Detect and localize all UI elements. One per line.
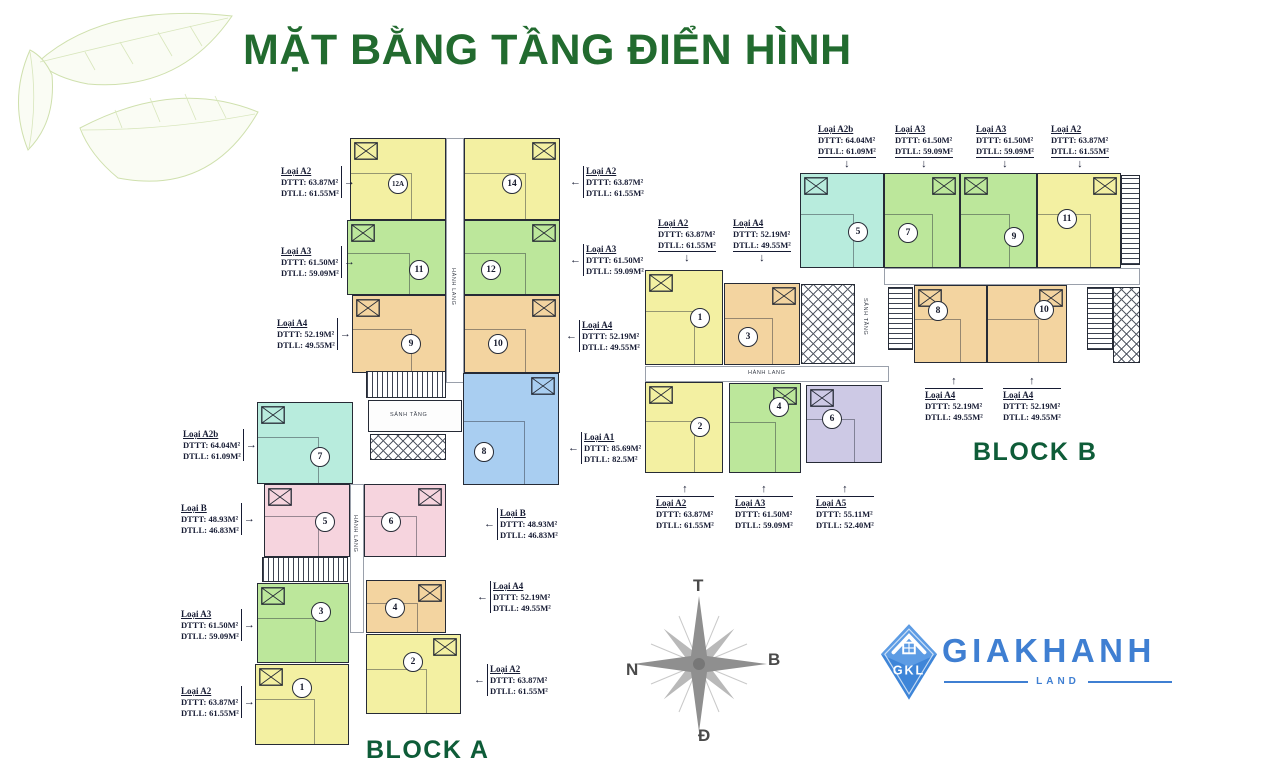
area-dttt-value: DTTT: 63.87M² xyxy=(181,697,239,708)
area-type-text: Loại A2DTTT: 63.87M²DTLL: 61.55M² xyxy=(656,496,714,530)
unit-number-badge: 3 xyxy=(311,602,331,622)
area-dtll-value: DTLL: 61.55M² xyxy=(1051,146,1109,157)
arrow-down-icon: ↓ xyxy=(1002,159,1008,170)
unit-number-badge: 12A xyxy=(388,174,408,194)
area-type-label: ↑Loại A5DTTT: 55.11M²DTLL: 52.40M² xyxy=(816,484,874,530)
area-dtll-value: DTLL: 59.09M² xyxy=(181,631,239,642)
area-type-text: Loại A3DTTT: 61.50M²DTLL: 59.09M² xyxy=(181,609,239,641)
unit-number-badge: 1 xyxy=(292,678,312,698)
area-type-label: Loại A4DTTT: 52.19M²DTLL: 49.55M²↓ xyxy=(733,218,791,264)
apartment-type-name: Loại A4 xyxy=(733,218,763,229)
logo-badge-text: GKL xyxy=(893,664,925,678)
logo-diamond-icon: GKL xyxy=(880,623,938,701)
gia-khanh-land-logo: GKL GIAKHANH LAND xyxy=(866,612,1188,707)
area-dttt-value: DTTT: 61.50M² xyxy=(895,135,952,146)
area-type-label: Loại A2DTTT: 63.87M²DTLL: 61.55M²→ xyxy=(181,686,255,718)
apartment-type-name: Loại A2 xyxy=(656,498,686,509)
area-type-text: Loại BDTTT: 48.93M²DTLL: 46.83M² xyxy=(181,503,239,535)
elevator-core xyxy=(370,434,446,460)
unit-number-badge: 6 xyxy=(822,409,842,429)
area-type-label: ←Loại A2DTTT: 63.87M²DTLL: 61.55M² xyxy=(570,166,644,198)
apartment-type-name: Loại B xyxy=(500,508,558,519)
corridor-label: HÀNH LANG xyxy=(748,370,786,376)
apartment-type-name: Loại A1 xyxy=(584,432,641,443)
apartment-type-name: Loại A3 xyxy=(281,246,339,257)
bracket-line xyxy=(241,609,242,641)
arrow-down-icon: ↓ xyxy=(1077,159,1083,170)
apartment-type-name: Loại A3 xyxy=(586,244,644,255)
logo-rule-line xyxy=(1088,681,1172,683)
area-type-text: Loại A2bDTTT: 64.04M²DTLL: 61.09M² xyxy=(818,124,876,158)
area-type-label: Loại BDTTT: 48.93M²DTLL: 46.83M²→ xyxy=(181,503,255,535)
unit-number-badge: 11 xyxy=(409,260,429,280)
area-type-label: Loại A2DTTT: 63.87M²DTLL: 61.55M²→ xyxy=(281,166,355,198)
area-dtll-value: DTLL: 59.09M² xyxy=(735,520,793,531)
area-dttt-value: DTTT: 61.50M² xyxy=(735,509,792,520)
area-dttt-value: DTTT: 52.19M² xyxy=(493,592,551,603)
area-dtll-value: DTLL: 61.55M² xyxy=(281,188,339,199)
stairs xyxy=(262,557,348,582)
area-dtll-value: DTLL: 49.55M² xyxy=(582,342,640,353)
area-dtll-value: DTLL: 49.55M² xyxy=(493,603,551,614)
typical-floor-plan-page: MẶT BẰNG TẦNG ĐIỂN HÌNH 12A 14 11 12 9 1… xyxy=(0,0,1279,767)
area-type-label: ←Loại A1DTTT: 85.69M²DTLL: 82.5M² xyxy=(568,432,641,464)
area-dttt-value: DTTT: 63.87M² xyxy=(490,675,548,686)
area-dtll-value: DTLL: 59.09M² xyxy=(976,146,1034,157)
area-type-label: Loại A2DTTT: 63.87M²DTLL: 61.55M²↓ xyxy=(658,218,716,264)
unit-number-badge: 5 xyxy=(315,512,335,532)
arrow-right-icon: → xyxy=(244,620,255,631)
compass-right-label: B xyxy=(768,650,780,670)
apartment-type-name: Loại A4 xyxy=(277,318,335,329)
area-type-label: Loại A3DTTT: 61.50M²DTLL: 59.09M²↓ xyxy=(976,124,1034,170)
apartment-type-name: Loại A2b xyxy=(818,124,853,135)
bracket-line xyxy=(490,581,491,613)
unit-number-badge: 10 xyxy=(1034,300,1054,320)
arrow-down-icon: ↓ xyxy=(759,253,765,264)
area-type-text: Loại A4DTTT: 52.19M²DTLL: 49.55M² xyxy=(733,218,791,252)
arrow-up-icon: ↑ xyxy=(1029,376,1035,387)
stairs xyxy=(366,371,446,398)
unit-number-badge: 12 xyxy=(481,260,501,280)
arrow-up-icon: ↑ xyxy=(682,484,688,495)
area-dttt-value: DTTT: 64.04M² xyxy=(818,135,875,146)
area-type-label: ←Loại A4DTTT: 52.19M²DTLL: 49.55M² xyxy=(477,581,551,613)
arrow-down-icon: ↓ xyxy=(844,159,850,170)
area-type-text: Loại A2DTTT: 63.87M²DTLL: 61.55M² xyxy=(281,166,339,198)
area-type-label: ←Loại BDTTT: 48.93M²DTLL: 46.83M² xyxy=(484,508,558,540)
area-dtll-value: DTLL: 59.09M² xyxy=(895,146,953,157)
area-dttt-value: DTTT: 61.50M² xyxy=(586,255,644,266)
arrow-down-icon: ↓ xyxy=(921,159,927,170)
corridor-label: SẢNH TẦNG xyxy=(390,412,427,418)
area-dttt-value: DTTT: 61.50M² xyxy=(281,257,339,268)
area-type-label: Loại A2DTTT: 63.87M²DTLL: 61.55M²↓ xyxy=(1051,124,1109,170)
block-a-label: BLOCK A xyxy=(366,736,489,765)
corridor-label: HÀNH LANG xyxy=(450,268,456,306)
area-type-text: Loại A4DTTT: 52.19M²DTLL: 49.55M² xyxy=(925,388,983,422)
area-type-text: Loại A3DTTT: 61.50M²DTLL: 59.09M² xyxy=(735,496,793,530)
logo-brand-text: GIAKHANH xyxy=(942,632,1156,670)
bracket-line xyxy=(341,166,342,198)
arrow-left-icon: ← xyxy=(568,443,579,454)
area-type-label: ↑Loại A4DTTT: 52.19M²DTLL: 49.55M² xyxy=(1003,376,1061,422)
area-type-text: Loại A3DTTT: 61.50M²DTLL: 59.09M² xyxy=(281,246,339,278)
area-dtll-value: DTLL: 61.55M² xyxy=(656,520,714,531)
arrow-right-icon: → xyxy=(344,177,355,188)
area-type-text: Loại A3DTTT: 61.50M²DTLL: 59.09M² xyxy=(895,124,953,158)
area-type-label: Loại A2bDTTT: 64.04M²DTLL: 61.09M²→ xyxy=(183,429,257,461)
logo-rule: LAND xyxy=(944,676,1172,687)
area-dttt-value: DTTT: 48.93M² xyxy=(500,519,558,530)
unit-number-badge: 10 xyxy=(488,334,508,354)
area-dttt-value: DTTT: 52.19M² xyxy=(1003,401,1060,412)
corridor-label: SẢNH TẦNG xyxy=(862,298,868,335)
block-b-label: BLOCK B xyxy=(973,438,1097,467)
apartment-type-name: Loại B xyxy=(181,503,239,514)
apartment-type-name: Loại A3 xyxy=(976,124,1006,135)
area-dtll-value: DTLL: 61.55M² xyxy=(181,708,239,719)
area-type-text: Loại A2DTTT: 63.87M²DTLL: 61.55M² xyxy=(658,218,716,252)
unit-number-badge: 7 xyxy=(310,447,330,467)
unit-number-badge: 1 xyxy=(690,308,710,328)
bracket-line xyxy=(487,664,488,696)
area-dttt-value: DTTT: 63.87M² xyxy=(586,177,644,188)
arrow-right-icon: → xyxy=(246,440,257,451)
area-type-label: ↑Loại A4DTTT: 52.19M²DTLL: 49.55M² xyxy=(925,376,983,422)
area-type-label: Loại A3DTTT: 61.50M²DTLL: 59.09M²↓ xyxy=(895,124,953,170)
area-dtll-value: DTLL: 52.40M² xyxy=(816,520,874,531)
area-type-text: Loại A5DTTT: 55.11M²DTLL: 52.40M² xyxy=(816,496,874,530)
compass-rose: T B Đ N xyxy=(612,578,787,748)
area-type-label: ↑Loại A3DTTT: 61.50M²DTLL: 59.09M² xyxy=(735,484,793,530)
area-type-text: Loại A2DTTT: 63.87M²DTLL: 61.55M² xyxy=(181,686,239,718)
apartment-type-name: Loại A4 xyxy=(582,320,640,331)
arrow-right-icon: → xyxy=(244,697,255,708)
area-dtll-value: DTLL: 61.55M² xyxy=(658,240,716,251)
area-dttt-value: DTTT: 63.87M² xyxy=(658,229,715,240)
apartment-type-name: Loại A4 xyxy=(925,390,955,401)
area-dttt-value: DTTT: 61.50M² xyxy=(976,135,1033,146)
unit-number-badge: 11 xyxy=(1057,209,1077,229)
unit-number-badge: 4 xyxy=(385,598,405,618)
unit-number-badge: 2 xyxy=(403,652,423,672)
arrow-left-icon: ← xyxy=(484,519,495,530)
area-dttt-value: DTTT: 85.69M² xyxy=(584,443,641,454)
logo-sub-text: LAND xyxy=(1028,676,1088,687)
arrow-left-icon: ← xyxy=(477,592,488,603)
compass-top-label: T xyxy=(693,576,703,596)
area-type-text: Loại A4DTTT: 52.19M²DTLL: 49.55M² xyxy=(582,320,640,352)
apartment-type-name: Loại A2 xyxy=(281,166,339,177)
elevator-core xyxy=(1113,287,1140,363)
area-dttt-value: DTTT: 63.87M² xyxy=(656,509,713,520)
apartment-type-name: Loại A2 xyxy=(181,686,239,697)
arrow-up-icon: ↑ xyxy=(842,484,848,495)
unit-number-badge: 4 xyxy=(769,397,789,417)
bracket-line xyxy=(497,508,498,540)
area-type-text: Loại A3DTTT: 61.50M²DTLL: 59.09M² xyxy=(586,244,644,276)
unit-number-badge: 14 xyxy=(502,174,522,194)
apartment-type-name: Loại A2 xyxy=(658,218,688,229)
area-dtll-value: DTLL: 61.09M² xyxy=(183,451,241,462)
area-dttt-value: DTTT: 61.50M² xyxy=(181,620,239,631)
area-dtll-value: DTLL: 49.55M² xyxy=(277,340,335,351)
apartment-type-name: Loại A2 xyxy=(586,166,644,177)
apartment-type-name: Loại A2 xyxy=(1051,124,1081,135)
bracket-line xyxy=(581,432,582,464)
area-type-text: Loại BDTTT: 48.93M²DTLL: 46.83M² xyxy=(500,508,558,540)
compass-left-label: N xyxy=(626,660,638,680)
bracket-line xyxy=(583,166,584,198)
area-type-text: Loại A1DTTT: 85.69M²DTLL: 82.5M² xyxy=(584,432,641,464)
area-type-text: Loại A2DTTT: 63.87M²DTLL: 61.55M² xyxy=(490,664,548,696)
apartment-type-name: Loại A4 xyxy=(493,581,551,592)
area-dttt-value: DTTT: 55.11M² xyxy=(816,509,873,520)
area-type-text: Loại A4DTTT: 52.19M²DTLL: 49.55M² xyxy=(1003,388,1061,422)
bracket-line xyxy=(583,244,584,276)
bracket-line xyxy=(341,246,342,278)
area-dtll-value: DTLL: 49.55M² xyxy=(925,412,983,423)
apartment-type-name: Loại A2b xyxy=(183,429,241,440)
bracket-line xyxy=(241,503,242,535)
bracket-line xyxy=(243,429,244,461)
arrow-left-icon: ← xyxy=(570,255,581,266)
area-dtll-value: DTLL: 82.5M² xyxy=(584,454,641,465)
logo-rule-line xyxy=(944,681,1028,683)
apartment-type-name: Loại A3 xyxy=(895,124,925,135)
unit-number-badge: 8 xyxy=(474,442,494,462)
area-type-label: Loại A3DTTT: 61.50M²DTLL: 59.09M²→ xyxy=(281,246,355,278)
area-dtll-value: DTLL: 49.55M² xyxy=(733,240,791,251)
arrow-up-icon: ↑ xyxy=(951,376,957,387)
area-dttt-value: DTTT: 48.93M² xyxy=(181,514,239,525)
area-dtll-value: DTLL: 59.09M² xyxy=(281,268,339,279)
area-type-label: Loại A3DTTT: 61.50M²DTLL: 59.09M²→ xyxy=(181,609,255,641)
area-dttt-value: DTTT: 63.87M² xyxy=(281,177,339,188)
unit-number-badge: 7 xyxy=(898,223,918,243)
stairs xyxy=(1121,175,1140,265)
arrow-right-icon: → xyxy=(340,329,351,340)
unit-number-badge: 3 xyxy=(738,327,758,347)
unit-number-badge: 5 xyxy=(848,222,868,242)
area-type-text: Loại A4DTTT: 52.19M²DTLL: 49.55M² xyxy=(493,581,551,613)
unit-number-badge: 6 xyxy=(381,512,401,532)
area-dttt-value: DTTT: 64.04M² xyxy=(183,440,241,451)
area-type-label: ←Loại A2DTTT: 63.87M²DTLL: 61.55M² xyxy=(474,664,548,696)
arrow-down-icon: ↓ xyxy=(684,253,690,264)
area-dtll-value: DTLL: 46.83M² xyxy=(181,525,239,536)
arrow-left-icon: ← xyxy=(566,331,577,342)
area-type-label: Loại A4DTTT: 52.19M²DTLL: 49.55M²→ xyxy=(277,318,351,350)
apartment-type-name: Loại A3 xyxy=(735,498,765,509)
apartment-type-name: Loại A2 xyxy=(490,664,548,675)
area-dtll-value: DTLL: 46.83M² xyxy=(500,530,558,541)
area-type-label: Loại A2bDTTT: 64.04M²DTLL: 61.09M²↓ xyxy=(818,124,876,170)
area-dtll-value: DTLL: 59.09M² xyxy=(586,266,644,277)
elevator-core xyxy=(801,284,855,364)
unit-number-badge: 9 xyxy=(1004,227,1024,247)
area-dtll-value: DTLL: 49.55M² xyxy=(1003,412,1061,423)
compass-bottom-label: Đ xyxy=(698,726,710,746)
area-type-label: ←Loại A3DTTT: 61.50M²DTLL: 59.09M² xyxy=(570,244,644,276)
arrow-right-icon: → xyxy=(244,514,255,525)
unit-number-badge: 9 xyxy=(401,334,421,354)
apartment-type-name: Loại A5 xyxy=(816,498,846,509)
area-dttt-value: DTTT: 52.19M² xyxy=(582,331,640,342)
apartment-type-name: Loại A3 xyxy=(181,609,239,620)
unit-number-badge: 2 xyxy=(690,417,710,437)
area-dttt-value: DTTT: 52.19M² xyxy=(277,329,335,340)
arrow-left-icon: ← xyxy=(474,675,485,686)
area-dtll-value: DTLL: 61.55M² xyxy=(586,188,644,199)
area-dtll-value: DTLL: 61.09M² xyxy=(818,146,876,157)
bracket-line xyxy=(579,320,580,352)
area-type-text: Loại A3DTTT: 61.50M²DTLL: 59.09M² xyxy=(976,124,1034,158)
area-type-label: ↑Loại A2DTTT: 63.87M²DTLL: 61.55M² xyxy=(656,484,714,530)
stairs xyxy=(888,287,913,350)
unit-number-badge: 8 xyxy=(928,301,948,321)
area-type-text: Loại A4DTTT: 52.19M²DTLL: 49.55M² xyxy=(277,318,335,350)
arrow-right-icon: → xyxy=(344,257,355,268)
area-dttt-value: DTTT: 63.87M² xyxy=(1051,135,1108,146)
stairs xyxy=(1087,287,1113,350)
area-dttt-value: DTTT: 52.19M² xyxy=(925,401,982,412)
corridor-label: HÀNH LANG xyxy=(352,515,358,553)
area-type-label: ←Loại A4DTTT: 52.19M²DTLL: 49.55M² xyxy=(566,320,640,352)
area-dtll-value: DTLL: 61.55M² xyxy=(490,686,548,697)
area-type-text: Loại A2DTTT: 63.87M²DTLL: 61.55M² xyxy=(1051,124,1109,158)
arrow-up-icon: ↑ xyxy=(761,484,767,495)
apartment-type-name: Loại A4 xyxy=(1003,390,1033,401)
bracket-line xyxy=(337,318,338,350)
area-type-text: Loại A2bDTTT: 64.04M²DTLL: 61.09M² xyxy=(183,429,241,461)
bracket-line xyxy=(241,686,242,718)
area-type-text: Loại A2DTTT: 63.87M²DTLL: 61.55M² xyxy=(586,166,644,198)
arrow-left-icon: ← xyxy=(570,177,581,188)
area-dttt-value: DTTT: 52.19M² xyxy=(733,229,790,240)
